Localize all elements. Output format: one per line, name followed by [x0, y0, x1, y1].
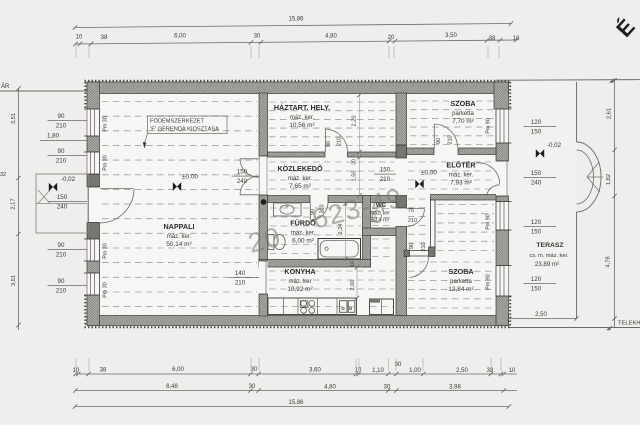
- svg-text:1,00: 1,00: [409, 368, 421, 374]
- svg-text:Pm 90: Pm 90: [486, 214, 492, 230]
- svg-text:30: 30: [249, 384, 256, 390]
- svg-text:parketta: parketta: [452, 111, 474, 117]
- svg-text:210: 210: [408, 218, 417, 224]
- svg-text:210: 210: [337, 137, 343, 146]
- svg-text:±0,00: ±0,00: [182, 174, 198, 181]
- svg-text:10: 10: [513, 36, 520, 42]
- svg-text:210: 210: [448, 135, 454, 144]
- svg-text:75: 75: [408, 208, 414, 214]
- svg-text:Pm 90: Pm 90: [486, 118, 492, 134]
- svg-text:Pm 30: Pm 30: [103, 116, 109, 132]
- svg-text:-0,02: -0,02: [61, 176, 76, 183]
- svg-text:4,80: 4,80: [325, 34, 337, 40]
- svg-text:50,14 m²: 50,14 m²: [166, 241, 191, 248]
- svg-text:30: 30: [352, 159, 358, 165]
- svg-text:38: 38: [100, 368, 107, 374]
- svg-text:FÖDÉMSZERKEZET: FÖDÉMSZERKEZET: [150, 118, 205, 125]
- svg-text:38: 38: [489, 36, 496, 42]
- svg-text:90: 90: [58, 113, 65, 120]
- svg-text:Pm 90: Pm 90: [486, 274, 492, 290]
- svg-text:90: 90: [409, 243, 415, 249]
- svg-text:1,50: 1,50: [352, 171, 358, 182]
- svg-text:150: 150: [531, 229, 542, 236]
- svg-text:1,82: 1,82: [606, 174, 612, 185]
- svg-text:210: 210: [56, 123, 67, 130]
- svg-text:210: 210: [380, 176, 391, 183]
- svg-text:30: 30: [384, 385, 391, 391]
- svg-text:máz. ker: máz. ker: [288, 279, 311, 285]
- svg-text:150: 150: [531, 129, 542, 136]
- svg-text:12,84 m²: 12,84 m²: [448, 286, 473, 293]
- svg-text:4,80: 4,80: [324, 385, 336, 391]
- svg-text:3,60: 3,60: [309, 368, 321, 374]
- svg-text:2,20: 2,20: [352, 116, 358, 127]
- svg-text:10,92 m²: 10,92 m²: [287, 286, 312, 293]
- svg-text:6,00 m²: 6,00 m²: [292, 238, 314, 245]
- svg-text:7,93 m²: 7,93 m²: [450, 180, 472, 187]
- svg-text:7,70 m²: 7,70 m²: [452, 118, 474, 125]
- svg-text:140: 140: [235, 270, 246, 277]
- svg-text:15,86: 15,86: [288, 17, 304, 23]
- svg-text:120: 120: [531, 119, 542, 126]
- svg-text:6,00: 6,00: [172, 367, 184, 373]
- svg-text:7,65 m²: 7,65 m²: [289, 183, 311, 190]
- svg-text:210: 210: [235, 280, 246, 287]
- svg-text:10,56 m²: 10,56 m²: [289, 122, 314, 129]
- svg-text:90: 90: [58, 242, 65, 249]
- svg-text:3,50: 3,50: [445, 33, 457, 39]
- svg-text:90: 90: [58, 278, 65, 285]
- svg-text:210: 210: [56, 158, 67, 165]
- svg-text:3,51: 3,51: [11, 275, 17, 286]
- svg-text:150: 150: [531, 170, 542, 177]
- svg-text:120: 120: [531, 276, 542, 283]
- svg-text:2,00: 2,00: [350, 280, 356, 291]
- svg-text:10: 10: [350, 261, 356, 267]
- svg-text:Pm 30: Pm 30: [103, 243, 109, 259]
- svg-text:1,80: 1,80: [47, 133, 60, 140]
- svg-text:máz. ker.: máz. ker.: [290, 115, 315, 121]
- svg-text:Pm 30: Pm 30: [103, 282, 109, 298]
- svg-text:máz. ker.: máz. ker.: [167, 234, 192, 240]
- svg-text:6,00: 6,00: [174, 34, 186, 40]
- svg-text:150: 150: [531, 286, 542, 293]
- svg-text:32: 32: [0, 172, 6, 178]
- svg-text:90: 90: [326, 141, 332, 147]
- svg-text:’E’ GERENDA KIOSZTÁSA: ’E’ GERENDA KIOSZTÁSA: [150, 126, 219, 133]
- svg-text:20: 20: [388, 35, 395, 41]
- svg-text:10: 10: [76, 35, 83, 41]
- svg-text:10: 10: [73, 368, 80, 374]
- svg-text:30: 30: [251, 367, 258, 373]
- svg-text:10: 10: [509, 368, 516, 374]
- svg-text:3,98: 3,98: [449, 385, 461, 391]
- svg-text:6,48: 6,48: [166, 384, 178, 390]
- svg-text:150: 150: [57, 194, 68, 201]
- svg-text:2,50: 2,50: [535, 312, 547, 318]
- svg-text:NAPPALI: NAPPALI: [163, 222, 194, 231]
- svg-text:23,89 m²: 23,89 m²: [535, 261, 559, 268]
- svg-text:SZOBA: SZOBA: [448, 267, 473, 276]
- svg-text:2,50: 2,50: [456, 368, 468, 374]
- svg-text:30: 30: [254, 34, 261, 40]
- svg-text:150: 150: [380, 167, 391, 174]
- svg-text:38: 38: [487, 368, 494, 374]
- svg-text:máz. ker.: máz. ker.: [449, 173, 474, 179]
- svg-text:240: 240: [237, 178, 248, 185]
- svg-text:máz. ker.: máz. ker.: [291, 231, 316, 237]
- svg-text:ELŐTÉR: ELŐTÉR: [446, 161, 476, 170]
- svg-text:210: 210: [56, 252, 67, 259]
- svg-text:TELEKHAT: TELEKHAT: [618, 321, 640, 327]
- svg-text:90: 90: [436, 138, 442, 144]
- svg-text:3,51: 3,51: [11, 113, 17, 124]
- svg-text:150: 150: [237, 169, 248, 176]
- svg-text:240: 240: [531, 180, 542, 187]
- svg-text:cs. m. máz. ker.: cs. m. máz. ker.: [529, 253, 569, 259]
- svg-text:38: 38: [101, 35, 108, 41]
- svg-text:±0,00: ±0,00: [421, 170, 437, 177]
- svg-text:Pm 30: Pm 30: [103, 155, 109, 171]
- svg-text:TERASZ: TERASZ: [536, 242, 563, 249]
- svg-text:2,17: 2,17: [11, 198, 17, 209]
- svg-text:KÖZLEKEDŐ: KÖZLEKEDŐ: [277, 164, 323, 173]
- svg-text:SZOBA: SZOBA: [450, 99, 475, 108]
- svg-text:210: 210: [56, 288, 67, 295]
- svg-text:4,78: 4,78: [606, 256, 612, 267]
- svg-text:2,61: 2,61: [607, 108, 613, 119]
- svg-text:240: 240: [57, 204, 68, 211]
- svg-text:parketta: parketta: [450, 279, 472, 285]
- svg-text:-0,02: -0,02: [547, 142, 562, 149]
- svg-text:1,10: 1,10: [372, 368, 384, 374]
- svg-text:210: 210: [421, 242, 427, 251]
- svg-text:120: 120: [531, 219, 542, 226]
- svg-text:KONYHA: KONYHA: [284, 267, 315, 276]
- svg-text:HÁZTART. HELY.: HÁZTART. HELY.: [274, 103, 330, 112]
- svg-text:ÁR: ÁR: [1, 83, 10, 90]
- svg-text:15,86: 15,86: [288, 400, 304, 406]
- svg-text:máz. ker.: máz. ker.: [288, 176, 313, 182]
- svg-text:90: 90: [58, 148, 65, 155]
